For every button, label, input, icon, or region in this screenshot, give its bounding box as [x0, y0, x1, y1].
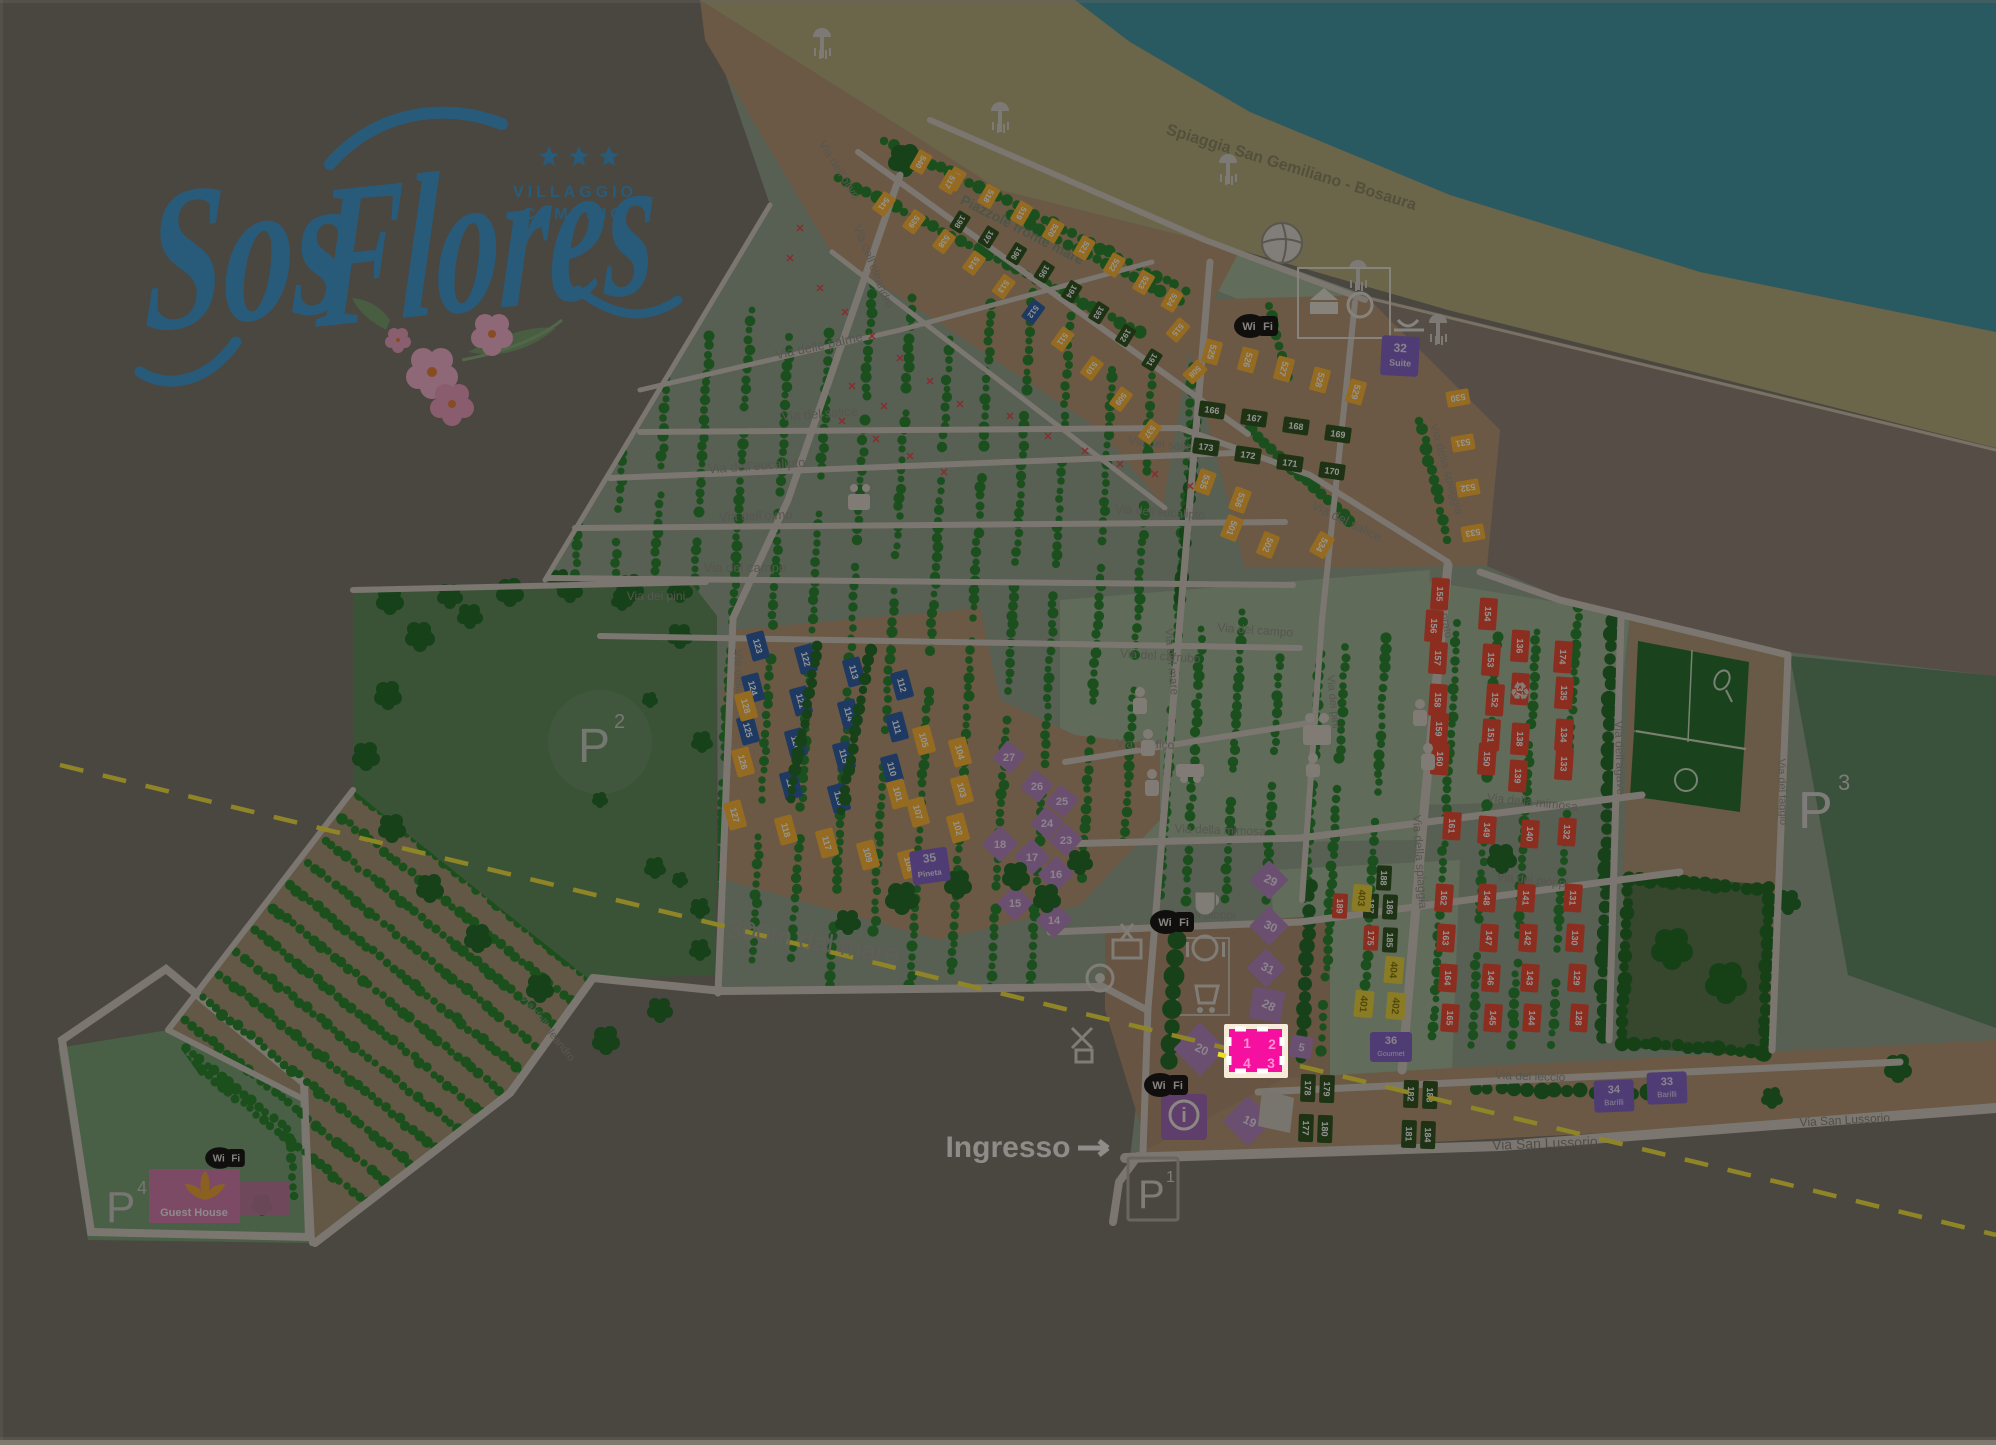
svg-text:4: 4: [1243, 1055, 1251, 1071]
svg-text:2: 2: [1268, 1036, 1276, 1052]
svg-text:3: 3: [1267, 1055, 1275, 1071]
svg-text:1: 1: [1243, 1035, 1251, 1051]
